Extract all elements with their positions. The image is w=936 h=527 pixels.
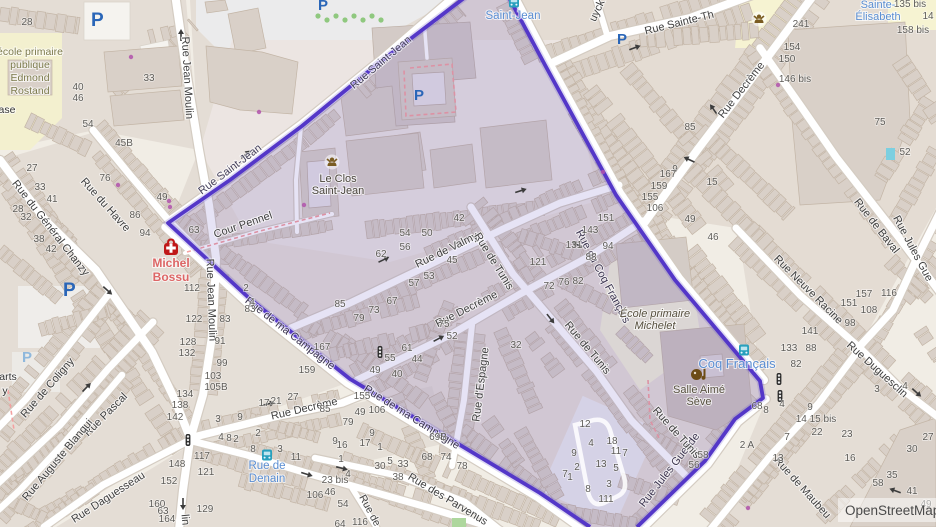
svg-text:École primaire: École primaire: [620, 307, 690, 320]
svg-text:2: 2: [233, 434, 239, 445]
svg-text:ase: ase: [0, 104, 16, 116]
svg-text:88: 88: [585, 252, 597, 263]
svg-text:154: 154: [784, 42, 801, 53]
svg-text:69B: 69B: [429, 432, 447, 443]
svg-text:53: 53: [423, 271, 435, 282]
svg-text:17: 17: [258, 398, 270, 409]
svg-text:3: 3: [215, 414, 221, 425]
svg-text:73: 73: [368, 305, 380, 316]
svg-text:3: 3: [606, 479, 612, 490]
svg-text:148: 148: [169, 459, 186, 470]
svg-text:106: 106: [369, 405, 386, 416]
svg-text:56: 56: [399, 242, 411, 253]
svg-text:159: 159: [299, 365, 316, 376]
svg-text:52: 52: [899, 147, 911, 158]
svg-text:2: 2: [574, 462, 580, 473]
svg-text:12: 12: [579, 419, 591, 430]
svg-text:46: 46: [72, 93, 84, 104]
svg-text:9: 9: [237, 412, 243, 423]
svg-text:OpenStreetMap: OpenStreetMap: [845, 503, 936, 518]
svg-text:116: 116: [352, 517, 368, 527]
svg-text:4: 4: [345, 469, 351, 480]
svg-text:75: 75: [438, 319, 450, 330]
svg-text:106: 106: [647, 203, 664, 214]
svg-text:85: 85: [319, 404, 331, 415]
svg-text:11: 11: [611, 446, 622, 457]
svg-text:121: 121: [198, 467, 215, 478]
svg-text:46: 46: [324, 487, 336, 498]
svg-text:13: 13: [772, 453, 784, 464]
svg-text:82: 82: [790, 359, 802, 370]
svg-text:11: 11: [291, 452, 302, 463]
svg-text:79: 79: [353, 313, 365, 324]
svg-text:5: 5: [613, 463, 619, 474]
svg-text:28: 28: [21, 17, 33, 28]
svg-text:2 A: 2 A: [740, 440, 755, 451]
svg-text:27: 27: [922, 432, 934, 443]
svg-text:15: 15: [706, 177, 718, 188]
svg-text:27: 27: [26, 163, 38, 174]
svg-text:Bossu: Bossu: [153, 270, 190, 284]
svg-text:3: 3: [874, 384, 880, 395]
svg-text:32: 32: [20, 212, 32, 223]
svg-text:138: 138: [172, 400, 189, 411]
svg-text:141: 141: [802, 326, 819, 337]
svg-text:79: 79: [342, 417, 354, 428]
svg-text:117: 117: [194, 451, 210, 462]
svg-text:105B: 105B: [204, 382, 228, 393]
svg-text:4: 4: [779, 399, 785, 410]
svg-text:41: 41: [906, 486, 918, 497]
svg-text:8: 8: [763, 405, 769, 416]
svg-text:Coq Français: Coq Français: [698, 356, 776, 371]
svg-text:152: 152: [161, 476, 178, 487]
svg-text:4: 4: [902, 381, 908, 392]
svg-text:P: P: [63, 280, 76, 301]
svg-text:38: 38: [392, 472, 404, 483]
svg-text:132: 132: [179, 348, 196, 359]
svg-text:88: 88: [805, 343, 817, 354]
svg-text:16: 16: [844, 453, 856, 464]
svg-text:9: 9: [332, 436, 338, 447]
svg-text:22: 22: [811, 427, 823, 438]
svg-text:134: 134: [177, 389, 194, 400]
svg-text:116: 116: [881, 288, 897, 299]
svg-text:arts: arts: [0, 371, 17, 383]
svg-text:8: 8: [250, 444, 256, 455]
svg-text:Salle Aimé: Salle Aimé: [673, 384, 725, 396]
svg-text:42: 42: [453, 213, 465, 224]
svg-text:128: 128: [180, 337, 197, 348]
svg-text:49: 49: [684, 214, 696, 225]
svg-text:13: 13: [595, 459, 607, 470]
svg-text:Rue de: Rue de: [248, 460, 285, 472]
svg-text:4: 4: [218, 432, 224, 443]
svg-text:3: 3: [277, 444, 283, 455]
svg-text:Sève: Sève: [686, 396, 711, 408]
svg-text:y: y: [2, 385, 8, 397]
svg-text:41: 41: [46, 194, 58, 205]
svg-text:49: 49: [156, 192, 168, 203]
svg-text:1: 1: [338, 454, 344, 465]
svg-text:54: 54: [337, 499, 349, 510]
svg-text:14: 14: [922, 11, 934, 22]
svg-text:9: 9: [369, 428, 375, 439]
svg-text:167: 167: [314, 342, 331, 353]
svg-text:61: 61: [401, 343, 413, 354]
svg-text:155: 155: [642, 192, 659, 203]
svg-text:94: 94: [139, 228, 151, 239]
svg-text:99: 99: [216, 358, 228, 369]
svg-text:Michelet: Michelet: [635, 320, 677, 332]
svg-text:Sainte-: Sainte-: [861, 0, 896, 11]
svg-text:85: 85: [334, 299, 346, 310]
svg-text:27: 27: [287, 392, 299, 403]
svg-text:151: 151: [841, 298, 858, 309]
svg-text:1: 1: [377, 442, 383, 453]
svg-text:Edmond: Edmond: [10, 72, 49, 84]
svg-text:106: 106: [307, 490, 324, 501]
svg-text:2: 2: [255, 428, 261, 439]
svg-text:111: 111: [598, 494, 614, 505]
svg-text:40: 40: [391, 369, 403, 380]
svg-text:167: 167: [660, 169, 677, 180]
svg-text:1: 1: [567, 472, 573, 483]
svg-text:150: 150: [779, 54, 796, 65]
svg-text:133: 133: [781, 343, 798, 354]
svg-text:54: 54: [82, 119, 94, 130]
svg-text:23: 23: [841, 429, 853, 440]
svg-text:50: 50: [421, 228, 433, 239]
svg-text:55: 55: [384, 353, 396, 364]
svg-text:157: 157: [856, 289, 873, 300]
svg-text:lin: lin: [179, 514, 192, 526]
svg-text:40: 40: [72, 82, 84, 93]
svg-text:112: 112: [184, 283, 200, 294]
svg-text:83: 83: [219, 314, 231, 325]
svg-text:155: 155: [354, 391, 371, 402]
svg-text:122: 122: [186, 314, 203, 325]
svg-text:83: 83: [244, 304, 256, 315]
svg-text:Élisabeth: Élisabeth: [855, 10, 900, 23]
svg-text:33: 33: [143, 73, 155, 84]
svg-text:76: 76: [99, 173, 111, 184]
svg-text:école primaire: école primaire: [0, 46, 63, 58]
svg-text:49: 49: [369, 365, 381, 376]
svg-text:135 bis: 135 bis: [894, 0, 926, 10]
svg-text:52: 52: [446, 331, 458, 342]
svg-text:49: 49: [354, 407, 366, 418]
svg-text:64: 64: [334, 519, 346, 527]
svg-text:2: 2: [243, 283, 249, 294]
svg-text:35: 35: [886, 470, 898, 481]
svg-text:44: 44: [411, 354, 423, 365]
svg-text:30: 30: [374, 461, 386, 472]
svg-text:57: 57: [408, 278, 420, 289]
svg-text:14 15 bis: 14 15 bis: [796, 414, 837, 425]
svg-text:103: 103: [205, 371, 222, 382]
svg-text:68: 68: [751, 401, 763, 412]
svg-text:P: P: [91, 10, 104, 31]
svg-text:86: 86: [129, 210, 141, 221]
svg-text:108: 108: [861, 305, 878, 316]
svg-text:32: 32: [510, 340, 522, 351]
svg-text:7: 7: [784, 432, 790, 443]
svg-text:54: 54: [399, 228, 411, 239]
svg-text:63: 63: [157, 506, 169, 517]
svg-text:9: 9: [807, 402, 813, 413]
svg-text:16: 16: [336, 440, 348, 451]
svg-text:151: 151: [598, 213, 615, 224]
svg-text:33: 33: [34, 182, 46, 193]
svg-text:142: 142: [167, 412, 184, 423]
svg-text:62: 62: [375, 249, 387, 260]
svg-text:121: 121: [530, 257, 547, 268]
svg-text:46: 46: [707, 232, 719, 243]
svg-text:17: 17: [359, 438, 371, 449]
svg-text:4: 4: [588, 438, 594, 449]
svg-text:P: P: [414, 87, 424, 104]
svg-text:Denain: Denain: [249, 473, 285, 485]
svg-text:8: 8: [585, 484, 591, 495]
svg-text:publique: publique: [10, 59, 50, 71]
svg-text:Saint-Jean: Saint-Jean: [486, 10, 541, 22]
svg-text:143: 143: [582, 225, 599, 236]
svg-text:75: 75: [874, 117, 886, 128]
svg-text:146 bis: 146 bis: [779, 74, 811, 85]
svg-text:58: 58: [872, 478, 884, 489]
svg-text:159: 159: [651, 181, 668, 192]
svg-text:98: 98: [844, 318, 856, 329]
svg-text:91: 91: [214, 336, 226, 347]
svg-text:74: 74: [440, 452, 452, 463]
svg-text:21: 21: [270, 396, 282, 407]
svg-text:78: 78: [456, 461, 468, 472]
svg-text:82: 82: [572, 276, 584, 287]
svg-text:67: 67: [386, 296, 398, 307]
svg-text:33: 33: [397, 459, 409, 470]
svg-text:56: 56: [688, 460, 700, 471]
svg-text:P: P: [318, 0, 328, 14]
svg-text:45B: 45B: [115, 138, 133, 149]
svg-text:38: 38: [33, 234, 45, 245]
svg-text:P: P: [22, 349, 32, 366]
svg-text:Rostand: Rostand: [10, 85, 49, 97]
svg-text:68: 68: [421, 452, 433, 463]
svg-text:241: 241: [793, 19, 810, 30]
svg-text:85: 85: [684, 122, 696, 133]
svg-text:9: 9: [571, 448, 577, 459]
svg-text:45: 45: [446, 255, 458, 266]
svg-text:Le Clos: Le Clos: [319, 173, 357, 185]
svg-text:7: 7: [622, 448, 628, 459]
svg-text:42: 42: [45, 244, 57, 255]
svg-text:94: 94: [602, 241, 614, 252]
svg-text:Saint-Jean: Saint-Jean: [312, 185, 365, 197]
svg-text:8: 8: [226, 433, 232, 444]
svg-text:131: 131: [566, 240, 583, 251]
svg-text:63: 63: [188, 225, 200, 236]
svg-text:5: 5: [387, 456, 393, 467]
svg-text:Michel: Michel: [152, 256, 189, 270]
svg-text:129: 129: [197, 504, 214, 515]
svg-text:30: 30: [906, 444, 918, 455]
svg-text:76: 76: [558, 277, 570, 288]
svg-text:158 bis: 158 bis: [897, 25, 929, 36]
svg-text:72: 72: [543, 281, 555, 292]
svg-text:P: P: [617, 31, 627, 48]
